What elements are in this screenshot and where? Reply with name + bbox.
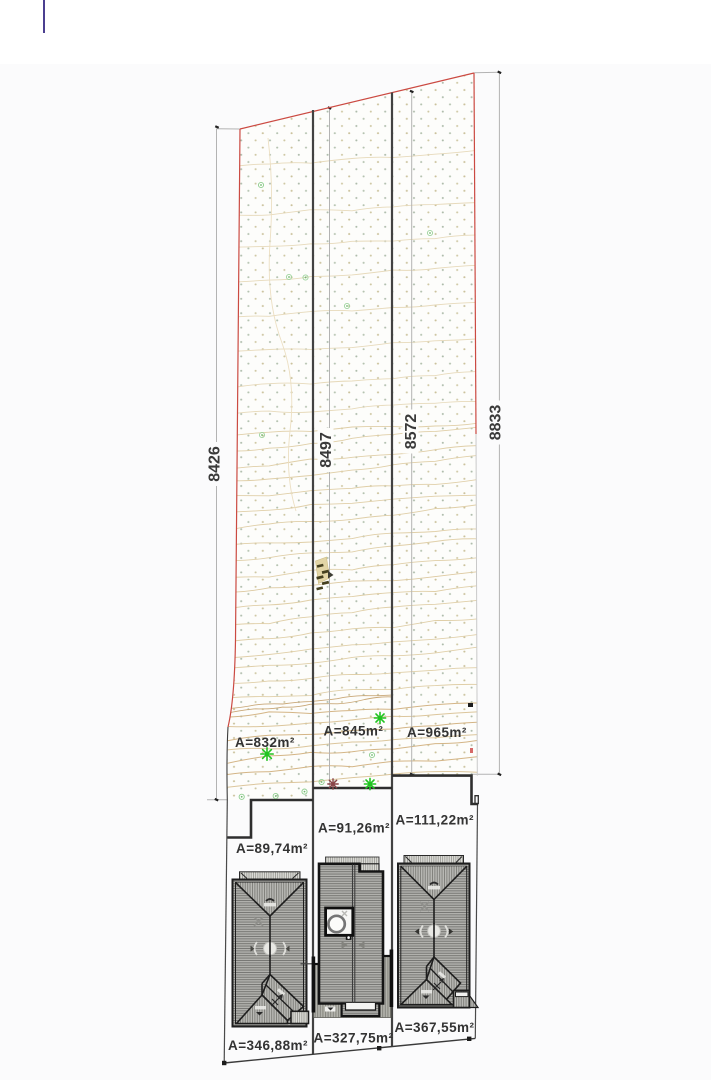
svg-text:8497: 8497: [318, 432, 335, 468]
svg-text:A=346,88m²: A=346,88m²: [228, 1038, 308, 1053]
svg-text:A=111,22m²: A=111,22m²: [396, 813, 474, 828]
svg-text:A=965m²: A=965m²: [407, 725, 467, 740]
svg-text:8572: 8572: [403, 414, 420, 450]
svg-text:A=91,26m²: A=91,26m²: [318, 821, 390, 836]
svg-text:8426: 8426: [207, 446, 224, 482]
svg-text:A=89,74m²: A=89,74m²: [236, 841, 308, 856]
svg-text:A=845m²: A=845m²: [324, 724, 384, 739]
svg-text:A=832m²: A=832m²: [235, 735, 295, 750]
svg-text:A=367,55m²: A=367,55m²: [395, 1020, 475, 1035]
svg-text:8833: 8833: [488, 405, 505, 441]
svg-text:A=327,75m²: A=327,75m²: [314, 1031, 394, 1046]
